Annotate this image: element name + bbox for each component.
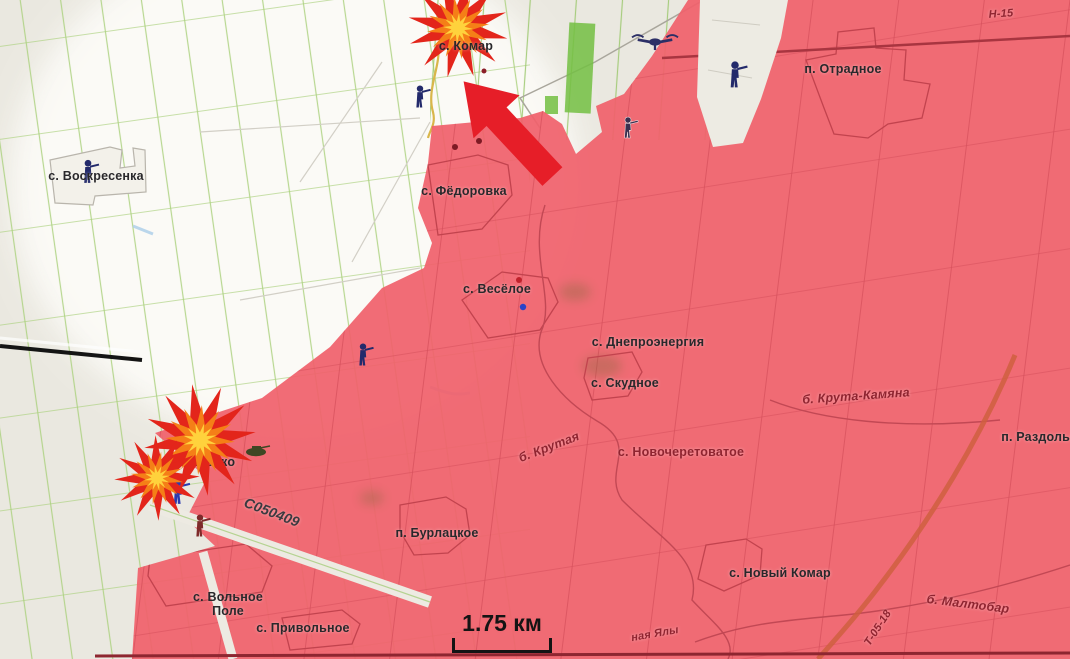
scale-bar-label: 1.75 км — [452, 610, 552, 637]
label-volnoe-pole: с. Вольное Поле — [184, 590, 272, 618]
label-komar: с. Комар — [439, 39, 493, 53]
label-veseloe: с. Весёлое — [463, 282, 531, 296]
label-h15: Н-15 — [988, 7, 1013, 21]
label-novocheretovatoe: с. Новочеретоватое — [618, 445, 744, 459]
label-razdolnoe: п. Раздольное — [1001, 430, 1070, 444]
explosion-cluster — [105, 360, 295, 550]
scale-bar-bracket — [452, 638, 552, 653]
label-skudnoe: с. Скудное — [591, 376, 659, 390]
scale-bar: 1.75 км — [452, 610, 552, 653]
map-graphics — [0, 0, 1070, 659]
label-fedorovka: с. Фёдоровка — [421, 184, 507, 198]
label-privolnoe: с. Привольное — [256, 621, 349, 635]
label-dneproenergia: с. Днепроэнергия — [592, 335, 704, 349]
label-novy-komar: с. Новый Комар — [729, 566, 831, 580]
map-canvas[interactable]: с. Комар п. Отрадное Н-15 с. Воскресенка… — [0, 0, 1070, 659]
label-burlatskoe: п. Бурлацкое — [395, 526, 478, 540]
label-voskresenka: с. Воскресенка — [48, 169, 144, 183]
label-otradnoe: п. Отрадное — [804, 62, 881, 76]
